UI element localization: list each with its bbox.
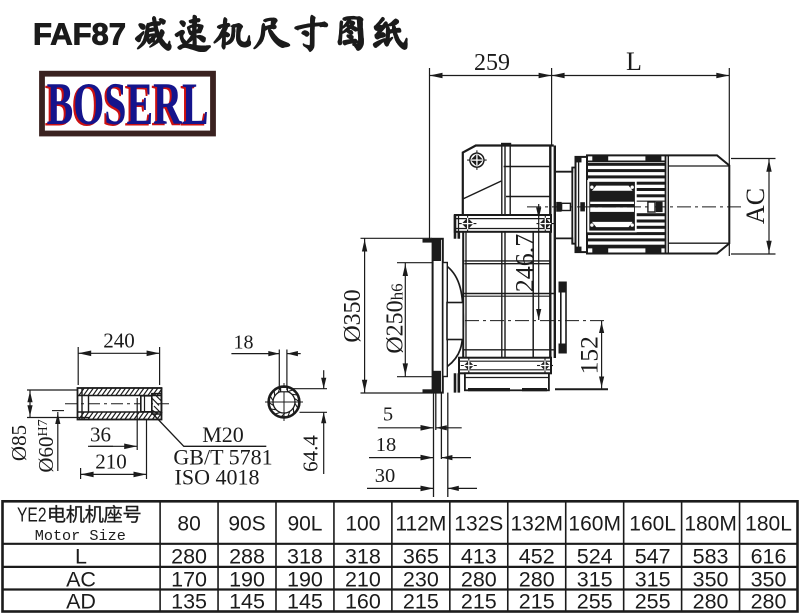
svg-text:215: 215	[403, 590, 439, 614]
svg-text:64.4: 64.4	[299, 435, 323, 472]
svg-text:132S: 132S	[454, 513, 503, 536]
svg-text:190: 190	[287, 568, 323, 592]
svg-text:145: 145	[229, 590, 265, 614]
svg-text:180L: 180L	[745, 513, 792, 536]
svg-text:280: 280	[171, 545, 207, 569]
svg-text:152: 152	[575, 336, 604, 374]
svg-text:280: 280	[461, 568, 497, 592]
svg-text:180M: 180M	[684, 513, 737, 536]
svg-text:FAF87: FAF87	[33, 17, 126, 52]
svg-text:160L: 160L	[629, 513, 676, 536]
svg-text:L: L	[626, 47, 642, 76]
svg-text:M20: M20	[202, 422, 244, 447]
svg-text:160: 160	[345, 590, 381, 614]
svg-text:90L: 90L	[287, 513, 322, 536]
svg-text:80: 80	[177, 513, 200, 536]
svg-text:ISO 4018: ISO 4018	[175, 465, 260, 490]
svg-text:240: 240	[103, 329, 135, 353]
svg-text:280: 280	[519, 568, 555, 592]
svg-text:36: 36	[90, 423, 111, 447]
svg-text:315: 315	[577, 568, 613, 592]
svg-text:255: 255	[635, 590, 671, 614]
svg-text:452: 452	[519, 545, 555, 569]
svg-text:132M: 132M	[510, 513, 563, 536]
svg-text:583: 583	[693, 545, 729, 569]
svg-text:112M: 112M	[395, 513, 446, 536]
svg-text:160M: 160M	[568, 513, 621, 536]
svg-text:100: 100	[345, 513, 380, 536]
svg-text:30: 30	[375, 465, 396, 487]
svg-text:145: 145	[287, 590, 323, 614]
svg-text:90S: 90S	[228, 513, 265, 536]
svg-text:Motor Size: Motor Size	[35, 527, 126, 545]
svg-text:350: 350	[751, 568, 787, 592]
svg-text:255: 255	[577, 590, 613, 614]
svg-text:616: 616	[751, 545, 787, 569]
svg-text:230: 230	[403, 568, 439, 592]
svg-text:AD: AD	[66, 590, 96, 614]
svg-text:280: 280	[751, 590, 787, 614]
svg-text:170: 170	[171, 568, 207, 592]
svg-text:AC: AC	[741, 188, 770, 224]
svg-text:288: 288	[229, 545, 265, 569]
svg-text:Ø85: Ø85	[7, 425, 31, 461]
svg-text:210: 210	[95, 450, 127, 474]
svg-text:350: 350	[693, 568, 729, 592]
svg-text:318: 318	[345, 545, 381, 569]
svg-text:18: 18	[376, 434, 397, 456]
svg-text:215: 215	[519, 590, 555, 614]
svg-text:210: 210	[345, 568, 381, 592]
svg-text:524: 524	[577, 545, 613, 569]
svg-text:AC: AC	[66, 568, 96, 592]
svg-text:L: L	[75, 545, 87, 569]
svg-text:547: 547	[635, 545, 671, 569]
svg-text:365: 365	[403, 545, 439, 569]
svg-text:413: 413	[461, 545, 497, 569]
svg-text:259: 259	[474, 50, 510, 76]
svg-text:BOSERL: BOSERL	[47, 71, 209, 138]
svg-text:315: 315	[635, 568, 671, 592]
svg-text:Ø350: Ø350	[340, 289, 366, 342]
svg-text:135: 135	[171, 590, 207, 614]
svg-text:280: 280	[693, 590, 729, 614]
svg-text:246.7: 246.7	[511, 234, 540, 293]
svg-text:190: 190	[229, 568, 265, 592]
svg-text:318: 318	[287, 545, 323, 569]
svg-text:215: 215	[461, 590, 497, 614]
svg-text:YE2: YE2	[17, 504, 47, 526]
svg-text:18: 18	[234, 332, 254, 354]
svg-text:5: 5	[383, 404, 393, 426]
